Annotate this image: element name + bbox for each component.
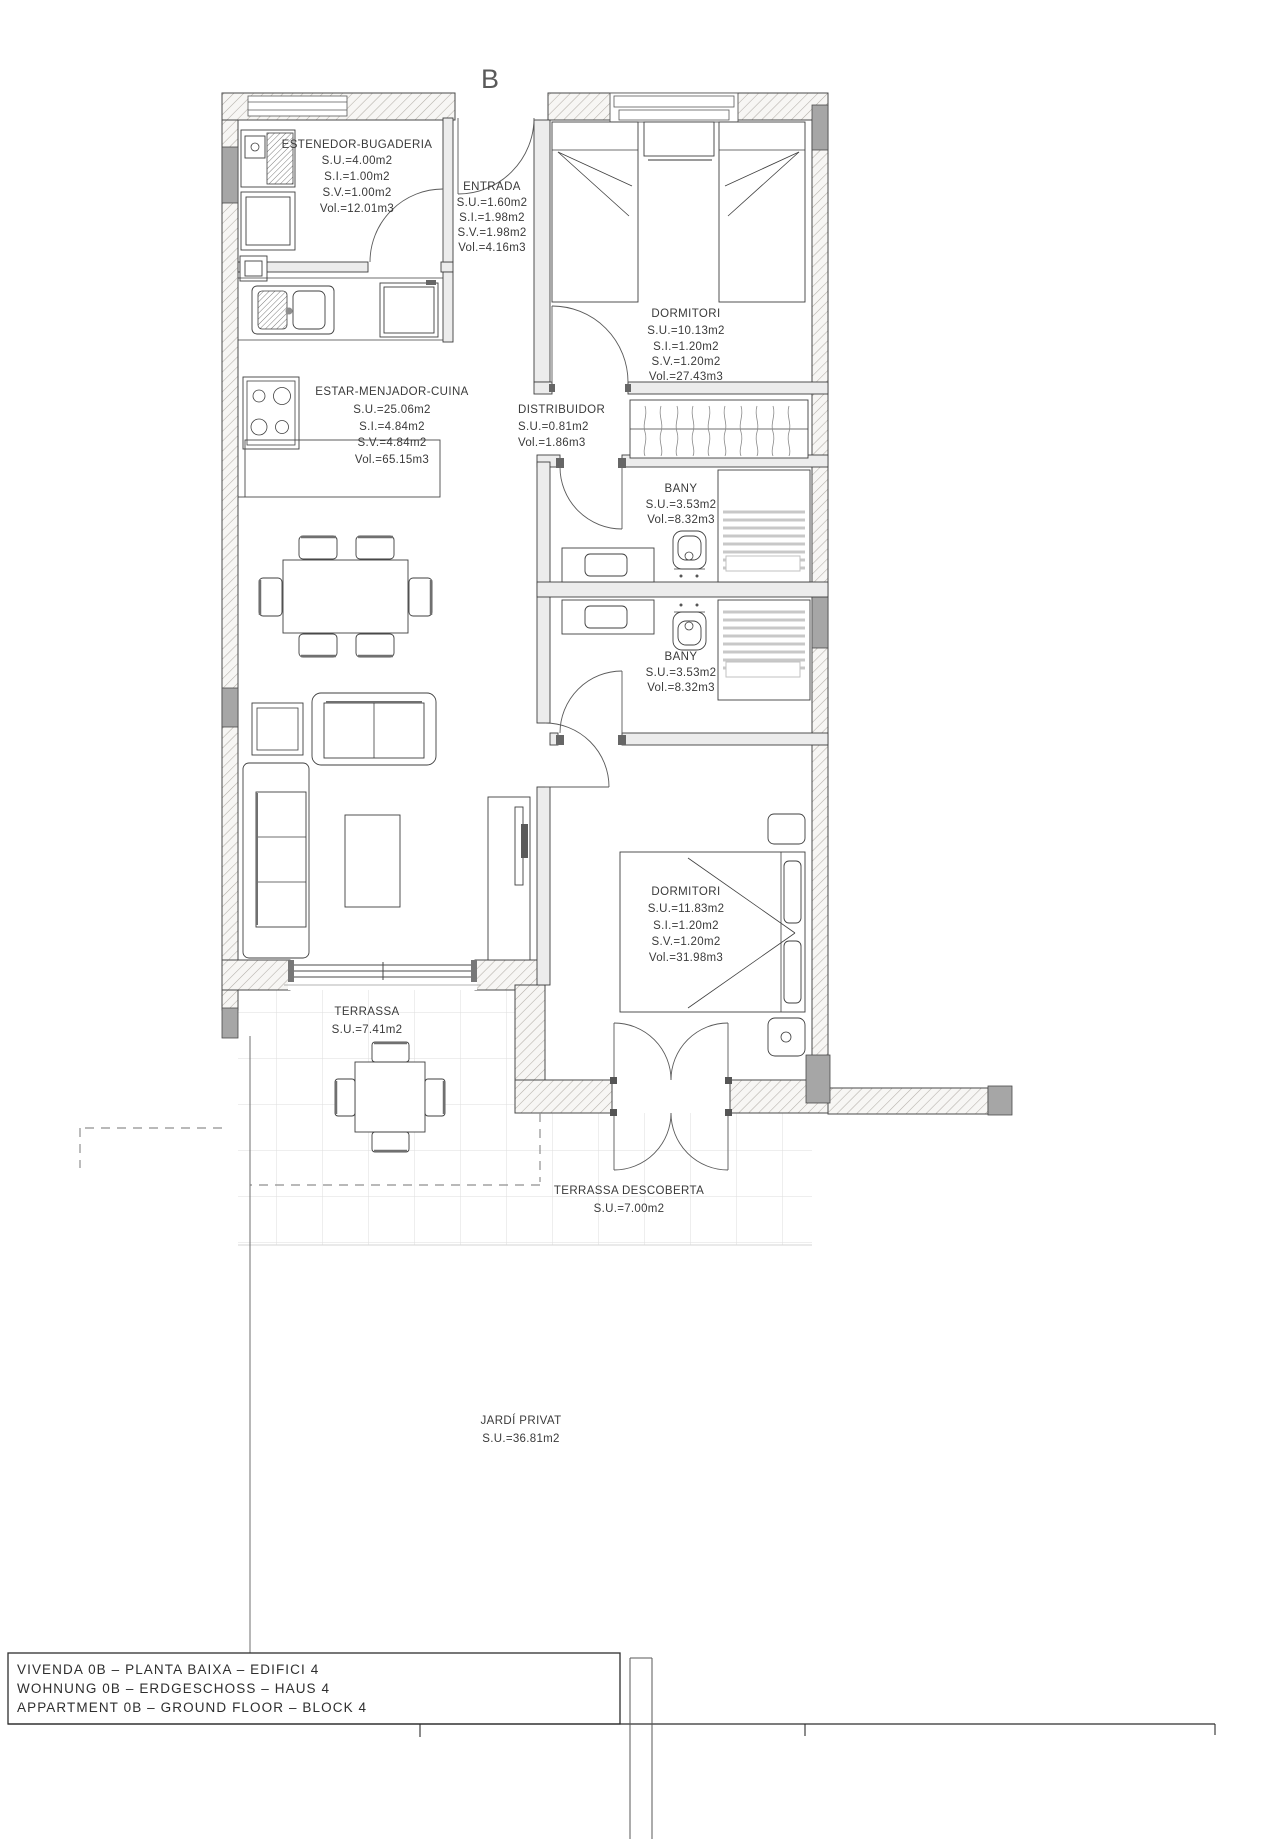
pillow [784, 941, 801, 1003]
corner-sofa [243, 763, 309, 958]
room-name: ENTRADA [463, 181, 521, 193]
dryer [241, 192, 295, 250]
room-name: TERRASSA DESCOBERTA [554, 1185, 704, 1197]
loveseat [312, 693, 436, 765]
room-name: DISTRIBUIDOR [518, 404, 605, 416]
room-value: S.I.=1.20m2 [653, 341, 719, 353]
room-value: S.I.=1.98m2 [459, 212, 525, 224]
room-name: DORMITORI [651, 886, 720, 898]
room-value: S.U.=3.53m2 [646, 499, 717, 511]
title-line-english: APPARTMENT 0B – GROUND FLOOR – BLOCK 4 [17, 1700, 367, 1715]
chair [356, 634, 394, 657]
pier [222, 147, 238, 203]
shower [718, 600, 810, 700]
room-value: S.U.=36.81m2 [482, 1433, 559, 1445]
room-value: Vol.=4.16m3 [458, 242, 526, 254]
room-value: Vol.=1.86m3 [518, 437, 586, 449]
living-room [243, 693, 530, 960]
laundry-room [240, 130, 295, 281]
floorplan-page: B ESTENEDOR-BUGADERIA S.U.=4.00m2 S.I.=1… [0, 0, 1280, 1839]
room-value: Vol.=8.32m3 [647, 514, 715, 526]
room-value: Vol.=8.32m3 [647, 682, 715, 694]
room-label-dormitori-2: DORMITORI S.U.=11.83m2 S.I.=1.20m2 S.V.=… [648, 886, 725, 964]
living-sliding-window [284, 960, 481, 990]
room-label-estenedor-bugaderia: ESTENEDOR-BUGADERIA S.U.=4.00m2 S.I.=1.0… [282, 139, 433, 215]
stool-table [768, 1018, 805, 1056]
chair [356, 536, 394, 559]
tv-screen [521, 824, 528, 858]
room-value: Vol.=31.98m3 [649, 952, 723, 964]
room-name: BANY [665, 651, 698, 663]
double-bed [620, 852, 805, 1012]
dining-set [259, 536, 432, 657]
chair [372, 1132, 409, 1152]
room-value: S.V.=1.98m2 [457, 227, 526, 239]
bathroom2-door [556, 671, 626, 745]
room-value: S.I.=1.20m2 [653, 920, 719, 932]
room-value: S.I.=1.00m2 [324, 171, 390, 183]
single-bed-right [719, 122, 805, 302]
room-name: ESTENEDOR-BUGADERIA [282, 139, 433, 151]
title-block: VIVENDA 0B – PLANTA BAIXA – EDIFICI 4 WO… [8, 1653, 1215, 1839]
stove [243, 377, 299, 449]
bedroom1-door [549, 306, 631, 392]
room-label-bany-2: BANY S.U.=3.53m2 Vol.=8.32m3 [646, 651, 717, 694]
toilet [673, 604, 706, 651]
room-value: Vol.=65.15m3 [355, 454, 429, 466]
room-name: ESTAR-MENJADOR-CUINA [315, 386, 468, 398]
room-value: S.V.=4.84m2 [357, 437, 426, 449]
bedroom1-window [610, 93, 738, 122]
laundry-door [370, 189, 443, 262]
room-value: S.U.=7.00m2 [594, 1203, 665, 1215]
room-value: S.U.=1.60m2 [457, 197, 528, 209]
wardrobe [630, 400, 808, 458]
room-name: BANY [665, 483, 698, 495]
room-value: S.U.=10.13m2 [647, 325, 724, 337]
title-line-german: WOHNUNG 0B – ERDGESCHOSS – HAUS 4 [17, 1681, 330, 1696]
room-value: S.U.=4.00m2 [322, 155, 393, 167]
floorplan-drawing: B ESTENEDOR-BUGADERIA S.U.=4.00m2 S.I.=1… [0, 0, 1280, 1839]
room-name: JARDÍ PRIVAT [480, 1414, 561, 1427]
room-name: TERRASSA [334, 1006, 399, 1018]
vanity-sink [562, 600, 654, 634]
toilet [673, 531, 706, 578]
armchair [252, 703, 303, 755]
room-label-estar-menjador-cuina: ESTAR-MENJADOR-CUINA S.U.=25.06m2 S.I.=4… [315, 386, 468, 466]
pier [806, 1055, 830, 1103]
single-bed-left [552, 122, 638, 302]
vanity-sink [562, 548, 654, 582]
pier [222, 688, 238, 727]
bathroom1-door [556, 458, 626, 529]
room-value: S.I.=4.84m2 [359, 421, 425, 433]
bedroom-2 [620, 814, 805, 1056]
room-label-bany-1: BANY S.U.=3.53m2 Vol.=8.32m3 [646, 483, 717, 526]
pillow [784, 861, 801, 923]
room-value: S.U.=3.53m2 [646, 667, 717, 679]
plan-label: B [481, 64, 500, 94]
room-name: DORMITORI [651, 308, 720, 320]
pier [812, 105, 828, 150]
room-value: S.U.=7.41m2 [332, 1024, 403, 1036]
floor-drain [240, 256, 267, 281]
room-value: S.V.=1.20m2 [651, 356, 720, 368]
nightstand [644, 122, 714, 160]
nightstand [768, 814, 805, 844]
tv-unit [488, 797, 530, 960]
room-label-jardi-privat: JARDÍ PRIVAT S.U.=36.81m2 [480, 1414, 561, 1445]
room-value: S.U.=11.83m2 [648, 903, 725, 915]
chair [409, 578, 432, 616]
chair [299, 634, 337, 657]
coffee-table [345, 815, 400, 907]
room-value: S.V.=1.20m2 [651, 936, 720, 948]
room-value: Vol.=12.01m3 [320, 203, 394, 215]
chair [335, 1079, 355, 1116]
laundry-window [248, 96, 347, 116]
room-label-dormitori-1: DORMITORI S.U.=10.13m2 S.I.=1.20m2 S.V.=… [647, 308, 724, 383]
chair [372, 1042, 409, 1062]
pier [222, 1008, 238, 1038]
shower [718, 470, 810, 582]
room-value: S.U.=0.81m2 [518, 421, 589, 433]
room-value: S.U.=25.06m2 [353, 404, 430, 416]
oven [380, 280, 438, 337]
room-label-entrada: ENTRADA S.U.=1.60m2 S.I.=1.98m2 S.V.=1.9… [457, 181, 528, 254]
chair [425, 1079, 445, 1116]
chair [259, 578, 282, 616]
room-value: Vol.=27.43m3 [649, 371, 723, 383]
terrace-table [355, 1062, 425, 1132]
dining-table [283, 560, 408, 633]
room-value: S.V.=1.00m2 [322, 187, 391, 199]
pier [988, 1086, 1012, 1115]
kitchen-sink [252, 286, 334, 334]
chair [299, 536, 337, 559]
title-line-catalan: VIVENDA 0B – PLANTA BAIXA – EDIFICI 4 [17, 1662, 319, 1677]
room-label-distribuidor: DISTRIBUIDOR S.U.=0.81m2 Vol.=1.86m3 [518, 404, 605, 449]
